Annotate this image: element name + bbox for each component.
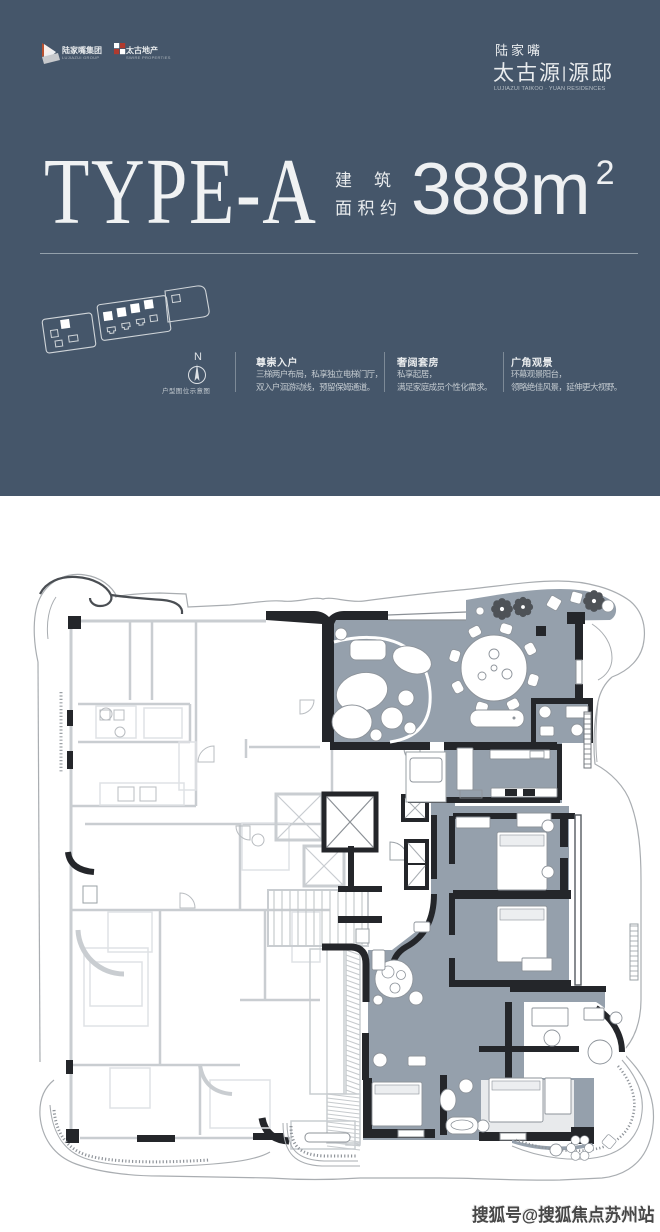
svg-text:户型图位示意图: 户型图位示意图 [162,386,210,395]
svg-text:N: N [194,351,202,363]
